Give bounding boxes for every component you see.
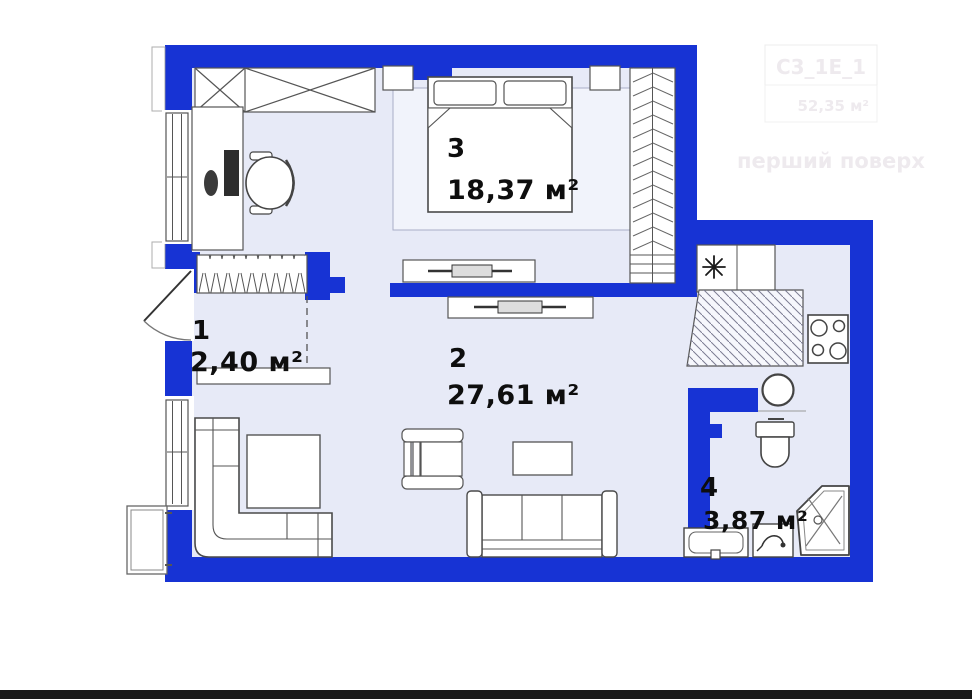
wall-hall-tab bbox=[330, 277, 345, 293]
room-number: 4 bbox=[700, 473, 718, 503]
nightstand-left bbox=[383, 66, 413, 90]
coat-rack bbox=[197, 255, 307, 293]
wall-bottom bbox=[165, 557, 873, 582]
window-frame bbox=[166, 400, 188, 506]
coffee-table bbox=[513, 442, 572, 475]
wardrobe-hatched bbox=[630, 68, 675, 283]
coat-hooks-pattern bbox=[199, 255, 305, 293]
watermark-total-area: 52,35 м² bbox=[798, 97, 870, 115]
room-number: 2 bbox=[449, 344, 467, 374]
wall-top bbox=[165, 45, 697, 68]
wall-bathroom-tab bbox=[710, 424, 722, 438]
room-area: 2,40 м² bbox=[190, 347, 303, 378]
wall-hall-right-block bbox=[305, 252, 330, 300]
armchair bbox=[402, 429, 463, 489]
table-hatch-pattern bbox=[687, 290, 803, 366]
ventilation-icon bbox=[703, 256, 725, 278]
desk-lamp bbox=[204, 170, 218, 196]
photo-edge-bar bbox=[0, 690, 972, 699]
side-table bbox=[247, 435, 320, 508]
room-number: 1 bbox=[192, 316, 210, 346]
wall-bedroom-living-divider bbox=[390, 283, 697, 297]
sofa bbox=[467, 491, 617, 557]
sofa-armrest-left bbox=[467, 491, 482, 557]
toilet-tank bbox=[756, 422, 794, 437]
kitchen-sink bbox=[763, 375, 794, 406]
ac-unit bbox=[127, 506, 172, 574]
dining-table-hatched bbox=[687, 290, 803, 366]
watermark-floor-name: перший поверх bbox=[737, 149, 925, 173]
room-area: 27,61 м² bbox=[447, 380, 580, 411]
monitor bbox=[224, 150, 239, 196]
tv-stand-bedroom bbox=[403, 260, 535, 282]
kitchen-cabinet bbox=[697, 245, 775, 292]
sofa-armrest-right bbox=[602, 491, 617, 557]
wall-bathroom-divider bbox=[688, 388, 758, 412]
wall-kitchen-top bbox=[675, 220, 873, 245]
wall-bedroom-right bbox=[675, 45, 697, 297]
room-area: 18,37 м² bbox=[447, 175, 580, 206]
floor-plan-page: 3 18,37 м² 2 27,61 м² 1 2,40 м² 4 3,87 м… bbox=[0, 0, 972, 699]
entrance-door bbox=[144, 269, 194, 341]
stove bbox=[808, 315, 848, 363]
wardrobe bbox=[195, 68, 375, 112]
toilet-bowl bbox=[761, 437, 789, 467]
desk bbox=[192, 107, 243, 250]
room-area: 3,87 м² bbox=[703, 506, 808, 535]
window-bedroom bbox=[162, 110, 194, 244]
shower-drain-icon bbox=[814, 516, 822, 524]
nightstand-right bbox=[590, 66, 620, 90]
watermark-plan-code: C3_1E_1 bbox=[776, 55, 866, 79]
window-living bbox=[162, 396, 194, 510]
wall-left-3 bbox=[165, 340, 192, 398]
watermark: C3_1E_1 52,35 м² перший поверх bbox=[737, 45, 925, 173]
floor-plan: 3 18,37 м² 2 27,61 м² 1 2,40 м² 4 3,87 м… bbox=[0, 0, 972, 699]
wall-right bbox=[850, 220, 873, 582]
tv-stand-living bbox=[448, 297, 593, 318]
pillow-left bbox=[434, 81, 496, 105]
room-number: 3 bbox=[447, 134, 465, 164]
wall-left-1 bbox=[165, 45, 192, 112]
pillow-right bbox=[504, 81, 566, 105]
